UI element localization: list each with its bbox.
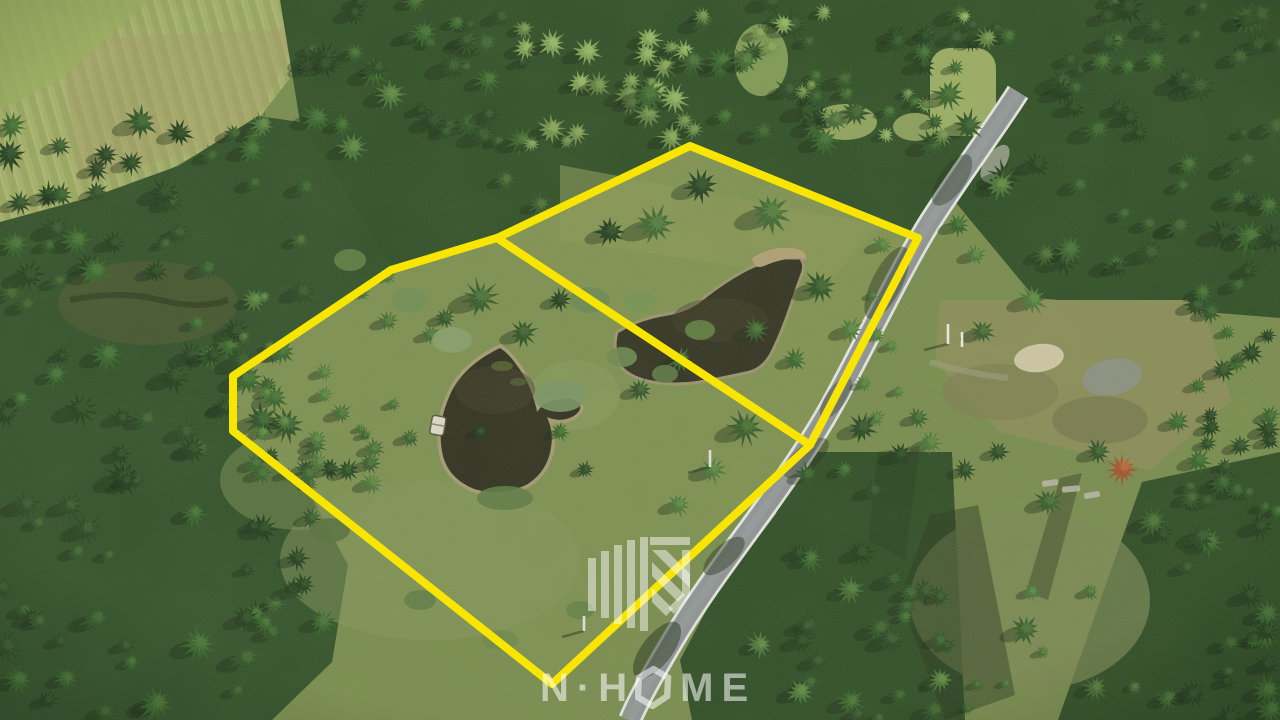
aerial-scene [0, 0, 1280, 720]
aerial-photo: N · H M E [0, 0, 1280, 720]
vignette [0, 0, 1280, 720]
